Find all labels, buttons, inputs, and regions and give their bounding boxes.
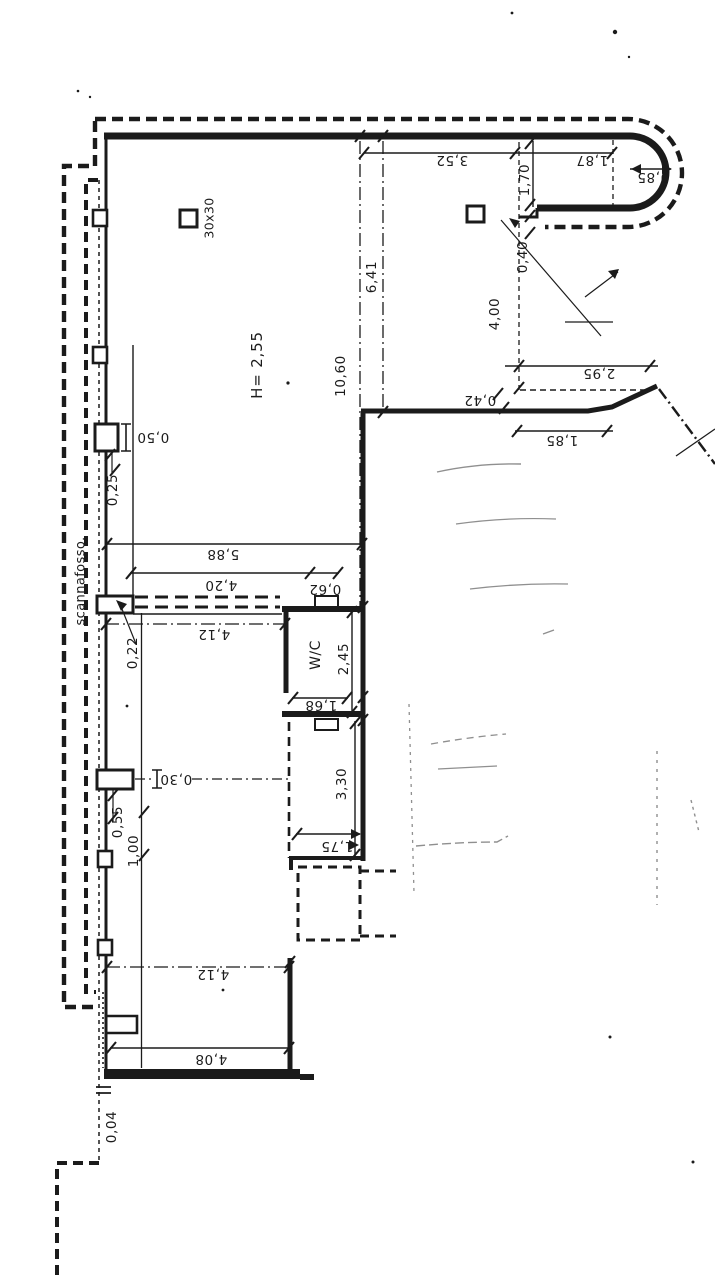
dim-label-1-75: 1,75	[321, 838, 353, 854]
leader-diagonal	[501, 220, 601, 336]
dim-label-2-45: 2,45	[336, 643, 352, 675]
pencil-stroke	[470, 584, 568, 589]
pencil-stroke	[437, 464, 521, 472]
scannafosso-label: scannafosso.	[74, 536, 89, 625]
dim-label-5-88: 5,88	[207, 546, 239, 562]
pillar	[93, 210, 107, 226]
speck	[628, 56, 630, 58]
dim-label-2-95: 2,95	[583, 365, 615, 381]
dim-label-1-70: 1,70	[517, 164, 533, 196]
pillar-30x30	[180, 210, 197, 227]
pillar	[97, 596, 133, 613]
pencil-artifacts	[409, 464, 699, 905]
dim-mark-004	[96, 1087, 111, 1093]
dim-label-4-08: 4,08	[195, 1051, 227, 1067]
pencil-stroke	[409, 704, 414, 893]
pillar-size-label: 30x30	[202, 197, 217, 238]
dim-label-0-04: 0,04	[104, 1111, 120, 1143]
dim-label-0-50: 0,50	[137, 429, 169, 445]
pencil-stroke	[438, 766, 497, 769]
dim-label-3-30: 3,30	[334, 768, 350, 800]
wall-chimney-notch	[106, 1016, 137, 1033]
wc-room-label: W/C	[308, 640, 324, 670]
pencil-stroke	[691, 800, 699, 832]
pillar-veranda	[467, 206, 484, 222]
dim-label-0-25: 0,25	[105, 474, 121, 506]
arrow-diagonal	[608, 269, 619, 279]
speck	[126, 705, 129, 708]
leader-lines	[501, 220, 715, 464]
dim-label-0-62: 0,62	[309, 581, 341, 597]
bracket-050	[121, 424, 131, 451]
pillar	[95, 424, 118, 451]
dimension-lines	[96, 140, 671, 1093]
dim-label-0-42: 0,42	[464, 392, 496, 408]
speck	[613, 30, 617, 34]
dim-label-3-52: 3,52	[436, 152, 468, 168]
speck	[511, 12, 514, 15]
leader-diagonal-short	[585, 272, 618, 297]
dim-label-4-12-upper: 4,12	[198, 626, 230, 642]
pillar	[97, 770, 133, 789]
room-height-label: H= 2,55	[248, 331, 266, 399]
wc-door-jamb-bottom	[315, 719, 338, 730]
dim-label-10-60: 10,60	[333, 355, 349, 397]
scan-specks	[77, 12, 695, 1164]
speck	[77, 90, 80, 93]
speck	[692, 1161, 695, 1164]
pencil-stroke	[456, 519, 556, 524]
labels: 3,52 1,87 0,85 1,70 0,40 4,00 2,95 0,42 …	[74, 152, 670, 1143]
pillar	[98, 940, 112, 955]
speck	[609, 1036, 612, 1039]
pencil-stroke	[543, 630, 554, 634]
speck	[89, 96, 91, 98]
pillar	[93, 347, 107, 363]
pillar	[98, 851, 112, 867]
speck	[286, 381, 289, 384]
arrow-175-right	[351, 829, 361, 839]
dim-label-1-68: 1,68	[305, 697, 337, 713]
building-walls	[103, 133, 666, 1077]
section-dashdot	[659, 389, 715, 464]
dim-label-4-00: 4,00	[487, 298, 503, 330]
dim-label-0-30: 0,30	[160, 771, 192, 787]
floor-plan-drawing: 3,52 1,87 0,85 1,70 0,40 4,00 2,95 0,42 …	[0, 0, 715, 1280]
pencil-stroke	[416, 836, 508, 846]
dim-label-1-00: 1,00	[126, 835, 142, 867]
dim-label-1-87: 1,87	[576, 152, 608, 168]
dim-label-4-20: 4,20	[205, 577, 237, 593]
arrowheads	[116, 164, 672, 850]
scanned-floor-plan-page: 3,52 1,87 0,85 1,70 0,40 4,00 2,95 0,42 …	[0, 0, 715, 1280]
pencil-stroke	[431, 734, 506, 744]
boundary-bottom-step	[57, 1163, 99, 1276]
speck	[222, 989, 225, 992]
dim-label-0-85: 0,85	[637, 169, 669, 185]
wall-veranda-hook	[519, 208, 537, 217]
dim-label-0-40: 0,40	[515, 241, 531, 273]
dim-label-6-41: 6,41	[364, 261, 380, 293]
dim-label-0-55: 0,55	[110, 806, 126, 838]
balcony-dashed-outline	[298, 867, 360, 940]
dim-label-0-22: 0,22	[125, 637, 141, 669]
section-cross	[676, 429, 715, 456]
dim-label-1-85: 1,85	[546, 432, 578, 448]
dim-label-4-12-lower: 4,12	[197, 966, 229, 982]
